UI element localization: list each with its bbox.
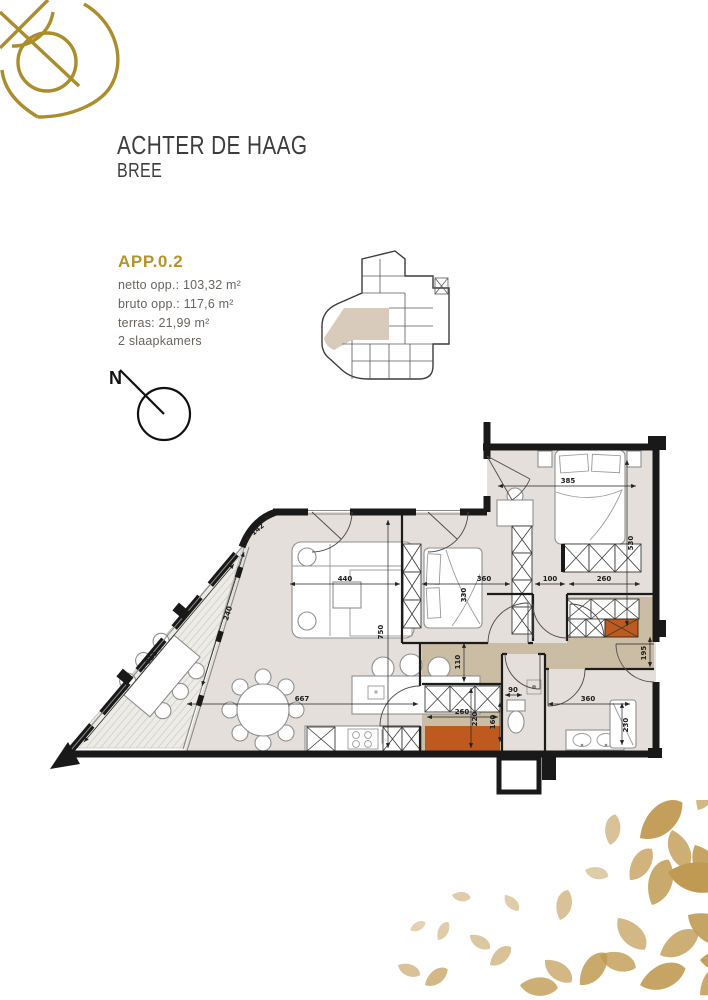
coffee-table [333,582,361,608]
dining-table [222,669,304,751]
bedroom2-bed [424,548,482,628]
page-title: ACHTER DE HAAG [117,130,308,161]
dimension-label: 110 [454,655,462,670]
dimension-label: 330 [460,588,468,603]
dimension-label: 530 [627,536,635,551]
dimension-label: 385 [561,477,576,485]
logo-slash [0,12,79,86]
dimension-label: 440 [338,575,353,583]
unit-bedrooms: 2 slaapkamers [118,332,241,351]
dimension-label: 260 [597,575,612,583]
unit-code: APP.0.2 [118,252,183,272]
unit-netto: netto opp.: 103,32 m² [118,276,241,295]
compass-needle [120,370,164,414]
unit-terras: terras: 21,99 m² [118,314,241,333]
logo-drop-left [2,70,38,117]
brochure-page: ACHTER DE HAAG BREE APP.0.2 netto opp.: … [0,0,708,1000]
technical-shaft [605,619,638,637]
dimension-label: 100 [543,575,558,583]
dimension-label: 220 [471,712,479,727]
bar-stool [400,654,422,676]
dimension-label: 360 [477,575,492,583]
unit-bruto: bruto opp.: 117,6 m² [118,295,241,314]
leaves-decoration [370,800,708,1000]
dimension-label: 750 [377,625,385,640]
logo-circle [18,33,76,91]
site-plan-thumbnail [292,246,467,396]
dimension-label: 230 [622,718,630,733]
logo-slash-2 [0,0,48,48]
leaf-cluster [396,800,708,1000]
page-subtitle: BREE [117,160,162,183]
dimension-label: 195 [640,646,648,661]
floor-plan: 4403303601002603855307501106672602209016… [50,414,690,799]
stair-stub [499,758,539,792]
compass-n-label: N [109,368,122,388]
dimension-label: 260 [455,708,470,716]
dimension-label: 360 [581,695,596,703]
sofa [292,542,414,638]
unit-info: netto opp.: 103,32 m² bruto opp.: 117,6 … [118,276,241,351]
dimension-label: 160 [489,715,497,730]
dimension-label: 90 [508,686,518,694]
brand-logo [0,0,125,125]
dimension-label: 667 [295,695,310,703]
